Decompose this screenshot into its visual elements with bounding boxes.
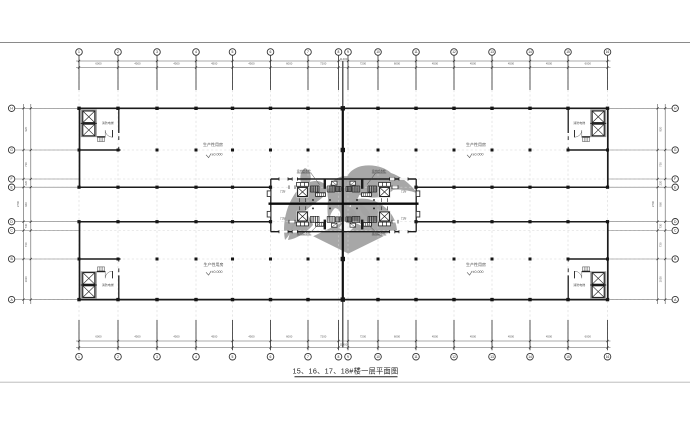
svg-text:1030: 1030 <box>24 276 28 283</box>
svg-text:11: 11 <box>414 355 418 359</box>
svg-text:920: 920 <box>658 126 662 131</box>
svg-text:960: 960 <box>658 202 662 207</box>
svg-text:4500: 4500 <box>470 61 477 65</box>
svg-text:6: 6 <box>270 50 272 54</box>
svg-text:13: 13 <box>490 355 494 359</box>
svg-text:4500: 4500 <box>134 61 141 65</box>
svg-text:4500: 4500 <box>508 334 515 338</box>
svg-text:室内给水栓: 室内给水栓 <box>297 169 311 173</box>
svg-text:6: 6 <box>270 355 272 359</box>
svg-text:12: 12 <box>452 355 456 359</box>
svg-text:G: G <box>10 148 13 152</box>
svg-text:消防电梯: 消防电梯 <box>102 120 114 125</box>
svg-text:2700: 2700 <box>16 200 20 207</box>
svg-text:4500: 4500 <box>508 61 515 65</box>
svg-text:730: 730 <box>24 223 28 228</box>
svg-text:4: 4 <box>195 50 197 54</box>
svg-text:3: 3 <box>156 355 158 359</box>
svg-text:生产性用房: 生产性用房 <box>466 141 486 147</box>
svg-text:7: 7 <box>307 355 309 359</box>
svg-text:730: 730 <box>658 162 662 167</box>
svg-text:920: 920 <box>24 126 28 131</box>
svg-text:1: 1 <box>78 355 80 359</box>
svg-text:消防电梯: 消防电梯 <box>102 282 114 287</box>
svg-text:15: 15 <box>566 355 570 359</box>
svg-text:6000: 6000 <box>286 61 293 65</box>
svg-text:门厅: 门厅 <box>280 189 286 193</box>
svg-text:220: 220 <box>658 180 662 185</box>
svg-text:生产性用房: 生产性用房 <box>204 261 224 267</box>
svg-text:2700: 2700 <box>651 200 655 207</box>
svg-text:5: 5 <box>232 50 234 54</box>
svg-text:7200: 7200 <box>320 334 327 338</box>
svg-text:2: 2 <box>117 355 119 359</box>
svg-text:16: 16 <box>606 355 610 359</box>
svg-text:11400: 11400 <box>340 343 348 347</box>
svg-text:15: 15 <box>566 50 570 54</box>
svg-text:2: 2 <box>117 50 119 54</box>
svg-text:室内给水栓: 室内给水栓 <box>297 231 311 235</box>
svg-text:12: 12 <box>452 50 456 54</box>
svg-text:6000: 6000 <box>585 61 592 65</box>
svg-text:11400: 11400 <box>340 57 348 61</box>
svg-text:4500: 4500 <box>546 334 553 338</box>
svg-text:8: 8 <box>338 355 340 359</box>
svg-text:7200: 7200 <box>360 61 367 65</box>
svg-text:±0.000: ±0.000 <box>212 270 223 274</box>
svg-text:960: 960 <box>24 202 28 207</box>
svg-text:4500: 4500 <box>173 61 180 65</box>
svg-text:4500: 4500 <box>211 334 218 338</box>
svg-text:9: 9 <box>347 50 349 54</box>
svg-text:±0.000: ±0.000 <box>473 152 484 156</box>
svg-text:7: 7 <box>307 50 309 54</box>
svg-text:730: 730 <box>658 242 662 247</box>
svg-text:16: 16 <box>606 50 610 54</box>
svg-text:±0.000: ±0.000 <box>212 152 223 156</box>
svg-text:4: 4 <box>195 355 197 359</box>
svg-text:4500: 4500 <box>248 61 255 65</box>
svg-text:门厅: 门厅 <box>401 216 407 220</box>
svg-text:1: 1 <box>78 50 80 54</box>
svg-text:门厅: 门厅 <box>280 216 286 220</box>
svg-text:730: 730 <box>24 242 28 247</box>
svg-text:4500: 4500 <box>546 61 553 65</box>
svg-text:4500: 4500 <box>470 334 477 338</box>
svg-text:4500: 4500 <box>173 334 180 338</box>
svg-text:9: 9 <box>347 355 349 359</box>
svg-text:消防电梯: 消防电梯 <box>573 120 585 125</box>
svg-text:室内给水栓: 室内给水栓 <box>372 231 386 235</box>
svg-text:4500: 4500 <box>432 334 439 338</box>
svg-text:F: F <box>11 177 13 181</box>
svg-text:14: 14 <box>528 355 532 359</box>
svg-text:4500: 4500 <box>134 334 141 338</box>
svg-text:6000: 6000 <box>95 61 102 65</box>
svg-text:220: 220 <box>24 180 28 185</box>
svg-text:4500: 4500 <box>432 61 439 65</box>
svg-text:6000: 6000 <box>585 334 592 338</box>
svg-text:13: 13 <box>490 50 494 54</box>
svg-text:7200: 7200 <box>360 334 367 338</box>
svg-text:6000: 6000 <box>394 61 401 65</box>
svg-text:门厅: 门厅 <box>401 189 407 193</box>
svg-text:7200: 7200 <box>320 61 327 65</box>
svg-text:±0.000: ±0.000 <box>473 270 484 274</box>
svg-text:6000: 6000 <box>286 334 293 338</box>
svg-text:生产性用房: 生产性用房 <box>466 261 486 267</box>
svg-text:8: 8 <box>338 50 340 54</box>
svg-text:5: 5 <box>232 355 234 359</box>
svg-text:14: 14 <box>528 50 532 54</box>
svg-text:10: 10 <box>376 355 380 359</box>
svg-text:4500: 4500 <box>248 334 255 338</box>
svg-text:消防电梯: 消防电梯 <box>573 282 585 287</box>
svg-text:1030: 1030 <box>658 276 662 283</box>
svg-text:730: 730 <box>24 162 28 167</box>
svg-text:4500: 4500 <box>211 61 218 65</box>
svg-text:6000: 6000 <box>394 334 401 338</box>
svg-text:F: F <box>674 177 676 181</box>
svg-text:11: 11 <box>414 50 418 54</box>
svg-text:730: 730 <box>658 223 662 228</box>
svg-text:生产性用房: 生产性用房 <box>203 141 223 147</box>
svg-text:G: G <box>674 148 677 152</box>
svg-text:15、16、17、18#楼一层平面图: 15、16、17、18#楼一层平面图 <box>292 367 398 376</box>
svg-text:6000: 6000 <box>95 334 102 338</box>
svg-text:3: 3 <box>156 50 158 54</box>
svg-text:室内给水栓: 室内给水栓 <box>372 169 386 173</box>
svg-text:10: 10 <box>376 50 380 54</box>
